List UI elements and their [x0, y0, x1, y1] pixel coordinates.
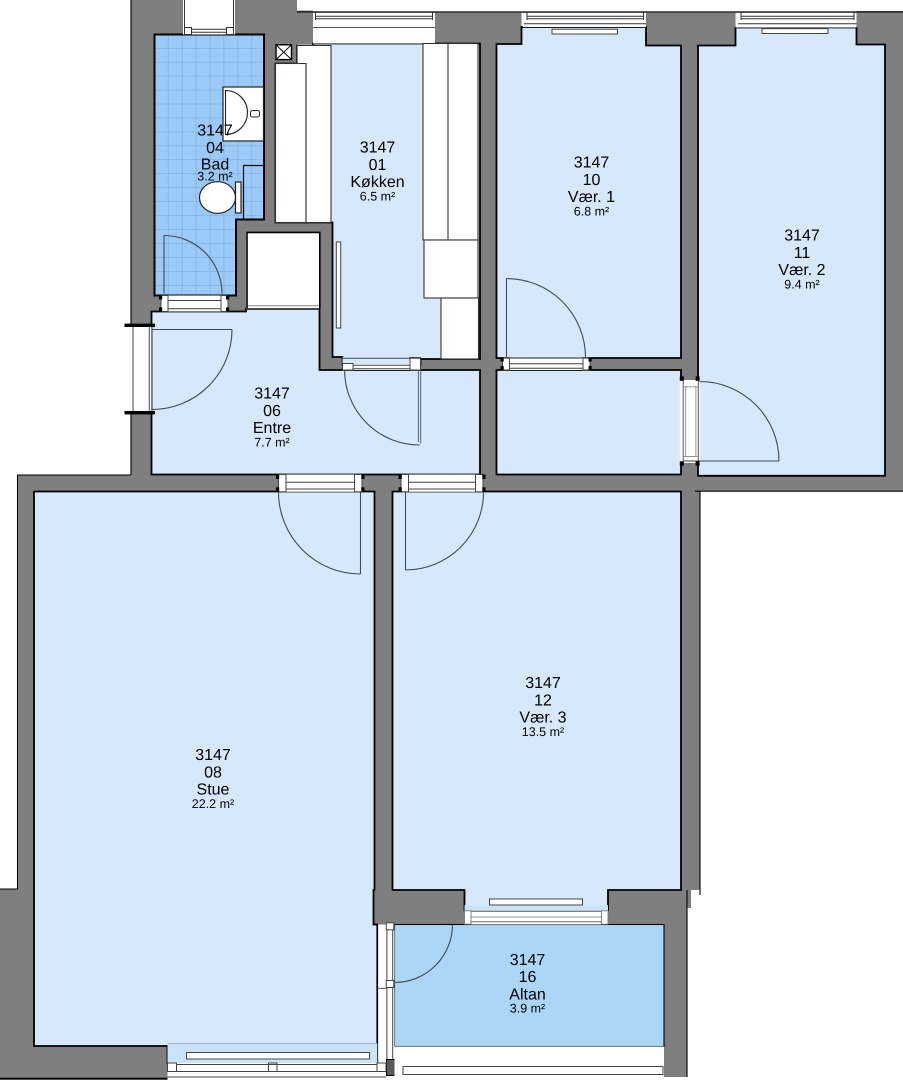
- svg-text:06: 06: [263, 403, 281, 420]
- svg-text:3147: 3147: [195, 747, 231, 764]
- svg-text:13.5 m²: 13.5 m²: [522, 725, 564, 739]
- svg-text:3147: 3147: [197, 123, 233, 140]
- svg-text:6.8 m²: 6.8 m²: [574, 204, 609, 218]
- svg-text:3147: 3147: [360, 139, 396, 156]
- svg-text:3.2 m²: 3.2 m²: [197, 170, 232, 184]
- svg-text:3147: 3147: [574, 154, 610, 171]
- svg-text:01: 01: [369, 157, 387, 174]
- svg-text:12: 12: [534, 692, 552, 709]
- svg-text:22.2 m²: 22.2 m²: [192, 797, 234, 811]
- svg-text:3147: 3147: [525, 675, 561, 692]
- svg-text:16: 16: [519, 969, 537, 986]
- svg-text:9.4 m²: 9.4 m²: [784, 277, 819, 291]
- svg-text:3.9 m²: 3.9 m²: [510, 1002, 545, 1016]
- svg-text:11: 11: [794, 245, 811, 262]
- svg-text:08: 08: [204, 764, 222, 781]
- svg-text:3147: 3147: [510, 952, 546, 969]
- svg-text:3147: 3147: [784, 227, 820, 244]
- svg-text:3147: 3147: [254, 385, 290, 402]
- svg-text:7.7 m²: 7.7 m²: [254, 435, 289, 449]
- svg-text:6.5 m²: 6.5 m²: [360, 189, 395, 203]
- svg-text:04: 04: [206, 140, 224, 157]
- svg-text:10: 10: [583, 172, 601, 189]
